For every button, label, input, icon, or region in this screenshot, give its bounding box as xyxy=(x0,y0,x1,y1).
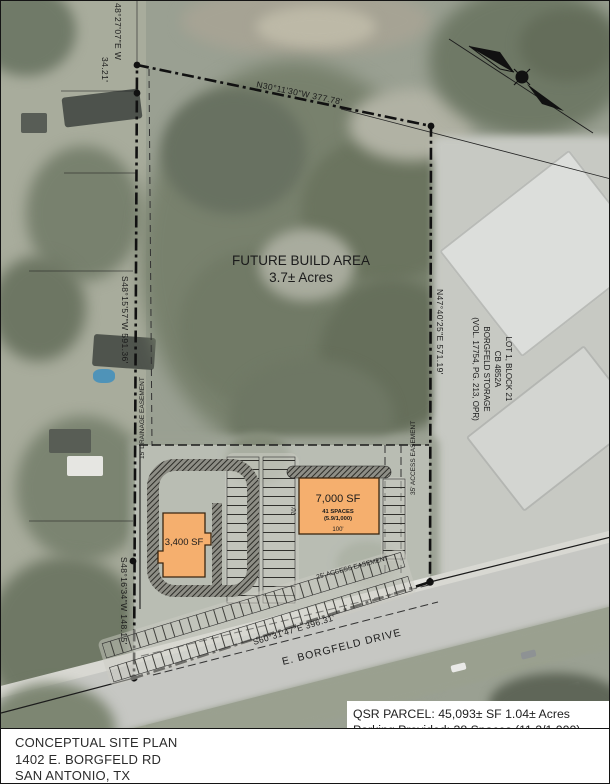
qsr-building xyxy=(299,478,379,534)
adjacent-lot-label: LOT 1, BLOCK 21 CB 4852A BORGFELD STORAG… xyxy=(471,317,513,421)
bearing-north-label: N30°11'30"W 377.78' xyxy=(256,79,344,107)
retail-parking xyxy=(225,453,299,605)
caption-strip: CONCEPTUAL SITE PLAN 1402 E. BORGFELD RD… xyxy=(1,728,610,784)
bearing-west-label: S48°15'57"W 591.36' xyxy=(120,276,130,364)
qsr-area-label: 7,000 SF xyxy=(316,493,361,505)
north-arrow-icon xyxy=(449,39,593,133)
plan-city: SAN ANTONIO, TX xyxy=(15,768,177,784)
road-edge-line xyxy=(430,537,610,582)
drainage-easement-label: 15' DRAINAGE EASEMENT xyxy=(139,377,146,459)
lot-line3: BORGFELD STORAGE xyxy=(482,326,491,411)
qsr-parking xyxy=(381,477,407,561)
future-build-area-label: FUTURE BUILD AREA 3.7± Acres xyxy=(232,253,370,285)
site-plan-sheet: N30°11'30"W 377.78' 48°27'07"E W 34.21' … xyxy=(0,0,610,784)
bearing-northwest-label: 48°27'07"E W xyxy=(113,3,123,60)
qsr-depth-label: 70' xyxy=(292,507,298,515)
bearing-northwest-length-label: 34.21' xyxy=(100,57,110,82)
site-plan-overlay: N30°11'30"W 377.78' 48°27'07"E W 34.21' … xyxy=(1,1,610,728)
lot-line2: CB 4852A xyxy=(493,351,502,388)
qsr-ratio-label: (5.9/1,000) xyxy=(324,516,352,522)
future-area-line2: 3.7± Acres xyxy=(269,270,333,285)
bearing-southwest-label: S48°16'34"W 148.15' xyxy=(119,557,129,645)
west-easement-line xyxy=(149,69,152,446)
title-block: CONCEPTUAL SITE PLAN 1402 E. BORGFELD RD… xyxy=(15,735,177,784)
future-area-line1: FUTURE BUILD AREA xyxy=(232,253,370,268)
lot-line1: LOT 1, BLOCK 21 xyxy=(504,337,513,402)
qsr-width-label: 100' xyxy=(332,527,343,533)
adjacent-parcel-line xyxy=(341,109,610,179)
plan-title: CONCEPTUAL SITE PLAN xyxy=(15,735,177,752)
access-easement-35-label: 35' ACCESS EASEMENT xyxy=(410,421,417,495)
qsr-canopy xyxy=(287,466,391,478)
retail-area-label: 3,400 SF xyxy=(165,537,204,548)
plan-address: 1402 E. BORGFELD RD xyxy=(15,752,177,769)
qsr-spaces-label: 41 SPACES xyxy=(322,509,354,515)
lot-line4: (VOL. 17754, PG. 213, OPR) xyxy=(471,317,480,421)
qsr-parcel-stat: QSR PARCEL: 45,093± SF 1.04± Acres xyxy=(353,706,610,722)
adjacent-lot-lines xyxy=(29,1,137,521)
bearing-east-label: N47°40'25"E 571.19' xyxy=(435,289,445,375)
